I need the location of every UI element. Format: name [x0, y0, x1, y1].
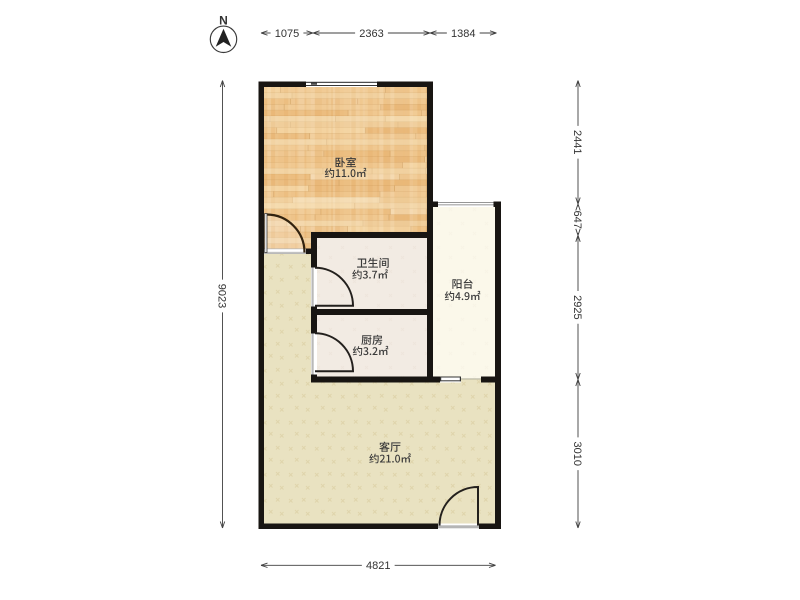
svg-text:1384: 1384 — [451, 28, 475, 40]
svg-text:2441: 2441 — [571, 130, 583, 154]
svg-text:4821: 4821 — [366, 560, 390, 572]
svg-text:9023: 9023 — [216, 284, 228, 308]
svg-text:2363: 2363 — [359, 28, 383, 40]
svg-text:2925: 2925 — [571, 295, 583, 319]
svg-text:647: 647 — [571, 210, 583, 228]
svg-text:1075: 1075 — [275, 28, 299, 40]
svg-text:N: N — [219, 14, 228, 28]
svg-text:3010: 3010 — [571, 442, 583, 466]
